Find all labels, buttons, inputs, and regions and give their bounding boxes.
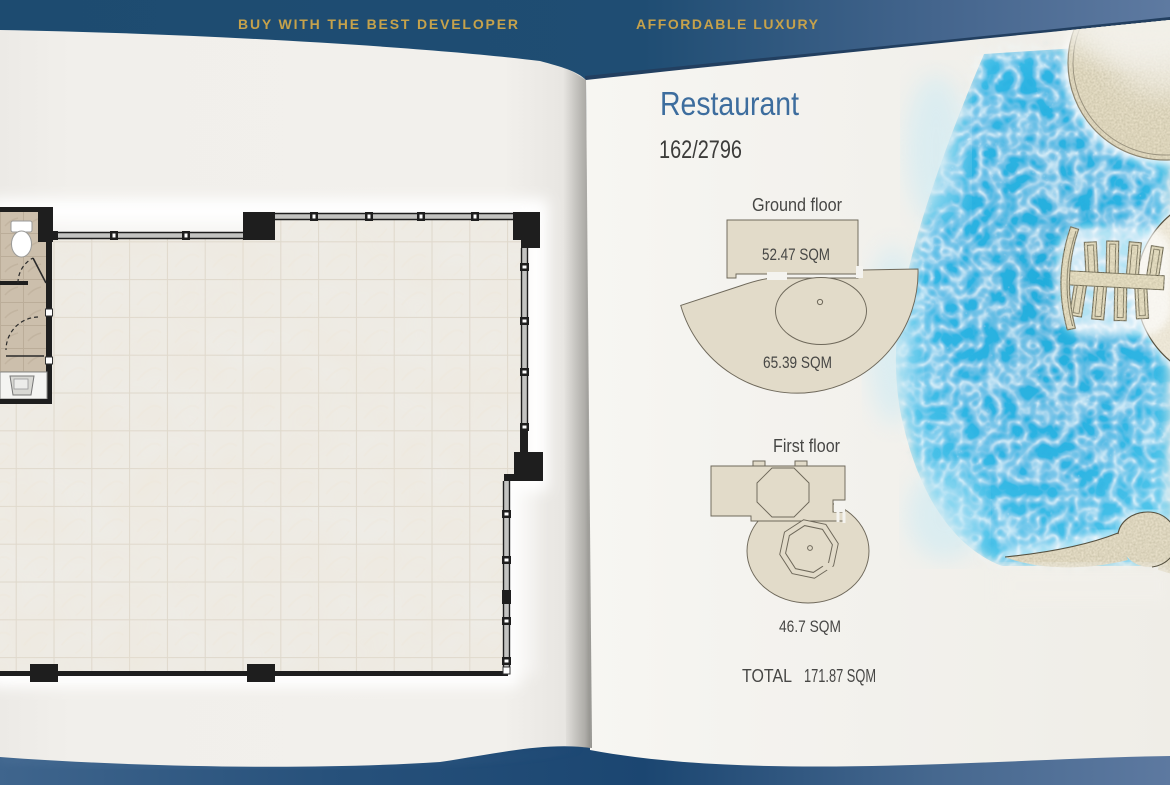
svg-text:46.7 SQM: 46.7 SQM	[779, 617, 841, 636]
svg-text:TOTAL171.87 SQM: TOTAL171.87 SQM	[742, 666, 876, 686]
svg-text:BUY WITH THE BEST DEVELOPER: BUY WITH THE BEST DEVELOPER	[238, 16, 520, 32]
svg-text:First floor: First floor	[773, 436, 840, 456]
svg-text:Ground floor: Ground floor	[752, 195, 842, 215]
svg-text:162/2796: 162/2796	[659, 136, 742, 164]
svg-text:52.47 SQM: 52.47 SQM	[762, 245, 830, 264]
svg-text:65.39 SQM: 65.39 SQM	[763, 353, 832, 372]
svg-text:Restaurant: Restaurant	[660, 85, 799, 122]
svg-text:AFFORDABLE LUXURY: AFFORDABLE LUXURY	[636, 16, 820, 32]
